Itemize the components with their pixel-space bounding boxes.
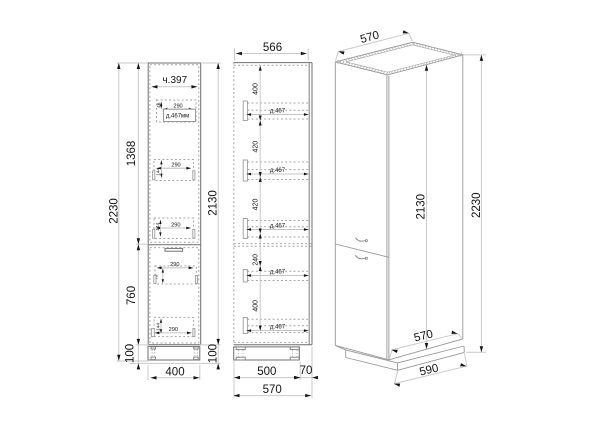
svg-text:46: 46 — [156, 102, 162, 108]
svg-text:1368: 1368 — [126, 141, 138, 167]
svg-text:290: 290 — [170, 262, 179, 268]
svg-text:500: 500 — [257, 366, 276, 378]
svg-text:400: 400 — [165, 366, 184, 378]
svg-text:400: 400 — [253, 83, 260, 95]
svg-text:2230: 2230 — [108, 198, 120, 224]
svg-text:2130: 2130 — [415, 194, 427, 220]
svg-text:290: 290 — [171, 162, 180, 168]
svg-text:290: 290 — [169, 327, 178, 333]
svg-text:144: 144 — [155, 222, 161, 230]
svg-text:144: 144 — [155, 167, 161, 175]
svg-text:д.467: д.467 — [270, 325, 286, 331]
svg-text:д.467: д.467 — [270, 270, 286, 276]
svg-text:420: 420 — [253, 199, 260, 211]
svg-text:100: 100 — [208, 344, 220, 363]
svg-text:100: 100 — [125, 344, 137, 363]
svg-text:570: 570 — [263, 384, 282, 396]
svg-text:2230: 2230 — [471, 192, 483, 218]
svg-text:д.467: д.467 — [270, 168, 286, 174]
svg-text:70: 70 — [300, 365, 313, 377]
svg-text:760: 760 — [126, 286, 138, 305]
svg-text:566: 566 — [263, 42, 282, 54]
svg-text:д.467мм: д.467мм — [166, 114, 189, 120]
svg-text:290: 290 — [173, 103, 182, 109]
svg-text:2130: 2130 — [207, 190, 219, 216]
svg-text:ч.397: ч.397 — [162, 75, 187, 86]
svg-text:420: 420 — [253, 141, 260, 153]
svg-text:240: 240 — [253, 254, 260, 266]
svg-text:д.467: д.467 — [270, 224, 286, 230]
svg-text:400: 400 — [253, 300, 260, 312]
svg-text:144: 144 — [155, 323, 161, 331]
svg-text:д.467: д.467 — [270, 109, 286, 115]
